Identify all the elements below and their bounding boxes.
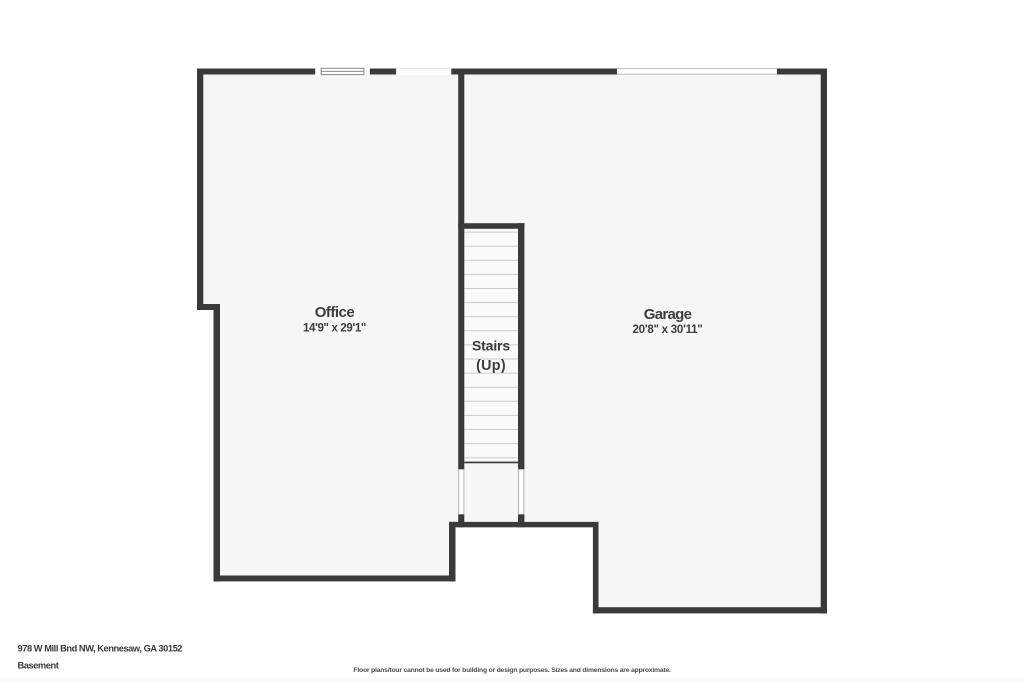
svg-text:14'9" x 29'1": 14'9" x 29'1" [303,323,366,335]
svg-text:(Up): (Up) [476,358,506,374]
svg-text:Floor plans/tour cannot be use: Floor plans/tour cannot be used for buil… [353,667,671,674]
svg-text:Office: Office [315,304,355,321]
svg-text:Stairs: Stairs [472,337,510,353]
svg-text:20'8" x 30'11": 20'8" x 30'11" [633,324,703,336]
svg-text:Garage: Garage [644,306,692,323]
svg-text:Basement: Basement [18,661,59,671]
svg-text:978 W Mill Bnd NW, Kennesaw, G: 978 W Mill Bnd NW, Kennesaw, GA 30152 [18,643,183,653]
